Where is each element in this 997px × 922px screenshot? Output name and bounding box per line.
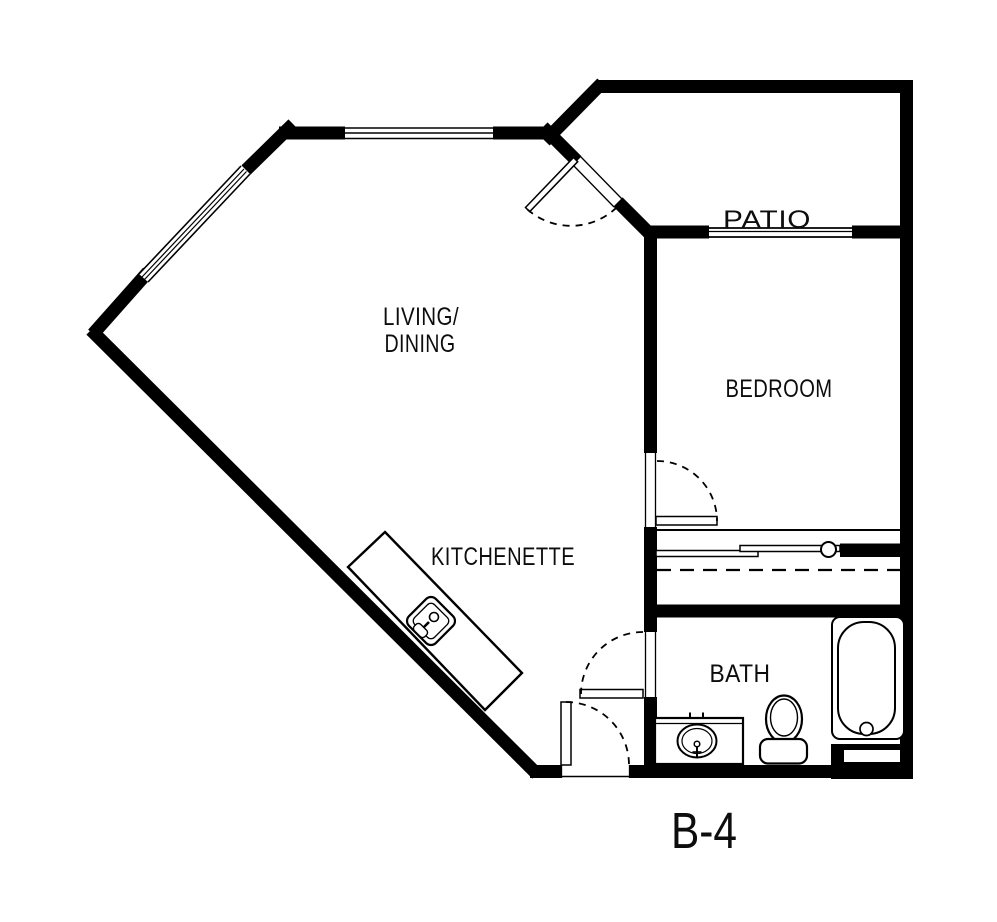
bedroom-label: BEDROOM — [726, 375, 833, 403]
bathtub-icon — [832, 617, 904, 739]
bedroom-door-leaf — [656, 517, 717, 526]
bath-door-leaf — [580, 690, 643, 699]
unit-plan-label: B-4 — [671, 802, 737, 859]
bathtub-basin — [838, 622, 895, 734]
vanity-drain — [694, 741, 700, 747]
kitchen-faucet-handle — [430, 613, 439, 622]
living-dining-label-line1: LIVING/ — [383, 303, 459, 331]
toilet-tank — [760, 739, 807, 764]
wall-closet-east-chunk — [840, 544, 903, 558]
entry-door-leaf — [561, 702, 571, 765]
living-dining-label-line2: DINING — [385, 330, 456, 358]
living-north-window-icon — [345, 127, 493, 140]
floor-plan-page: LIVING/ DINING PATIO BEDROOM KITCHENETTE… — [0, 0, 997, 922]
closet-door-pull-icon — [821, 542, 836, 557]
kitchenette-label: KITCHENETTE — [431, 543, 575, 571]
patio-label: PATIO — [723, 206, 811, 234]
vanity-sink-icon — [655, 713, 743, 765]
floor-plan-drawing: LIVING/ DINING PATIO BEDROOM KITCHENETTE… — [0, 0, 997, 922]
bathtub-drain — [860, 723, 873, 736]
bath-label: BATH — [710, 660, 771, 688]
wall-below-tub-slot — [844, 750, 900, 762]
